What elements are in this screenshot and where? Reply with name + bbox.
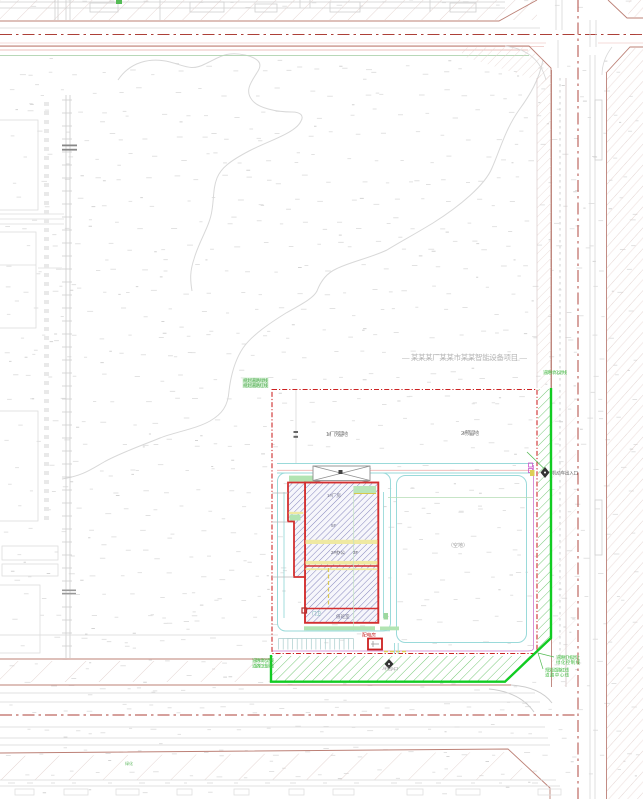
svg-text:道路绿化退线: 道路绿化退线 <box>543 369 568 376</box>
svg-text:绿化: 绿化 <box>125 760 133 766</box>
svg-text:机动车出入口: 机动车出入口 <box>552 470 578 477</box>
svg-text:1#厂房: 1#厂房 <box>327 492 342 499</box>
svg-text:道路中心线: 道路中心线 <box>545 672 570 679</box>
svg-text:值班室: 值班室 <box>336 613 350 620</box>
svg-text:绿化控制线: 绿化控制线 <box>556 659 581 666</box>
svg-text:2#预留地: 2#预留地 <box>461 429 479 437</box>
svg-text:（空地）: （空地） <box>448 542 468 549</box>
svg-text:道路红线退线: 道路红线退线 <box>252 663 275 670</box>
svg-text:配电房: 配电房 <box>362 632 376 639</box>
svg-text:门卫: 门卫 <box>312 610 321 617</box>
svg-text:— 某某某厂某某市某某智能设备项目 —: — 某某某厂某某市某某智能设备项目 — <box>402 352 528 362</box>
svg-text:5F: 5F <box>331 523 337 528</box>
svg-text:3F: 3F <box>353 550 359 555</box>
svg-text:规划道路红线: 规划道路红线 <box>243 382 269 389</box>
svg-text:1#厂房基地: 1#厂房基地 <box>326 430 348 438</box>
svg-text:人行出入口: 人行出入口 <box>382 665 398 671</box>
svg-text:2#办公: 2#办公 <box>331 549 346 556</box>
